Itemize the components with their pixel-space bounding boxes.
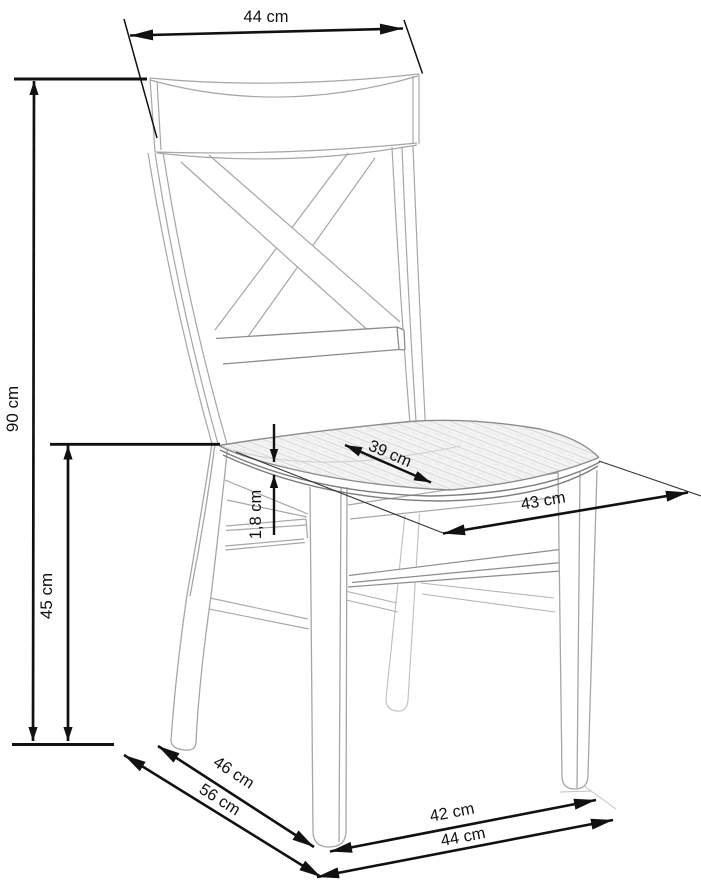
svg-text:44 cm: 44 cm: [244, 8, 289, 26]
svg-text:1,8 cm: 1,8 cm: [247, 490, 265, 540]
svg-text:90 cm: 90 cm: [3, 386, 22, 432]
svg-text:45 cm: 45 cm: [37, 573, 56, 619]
